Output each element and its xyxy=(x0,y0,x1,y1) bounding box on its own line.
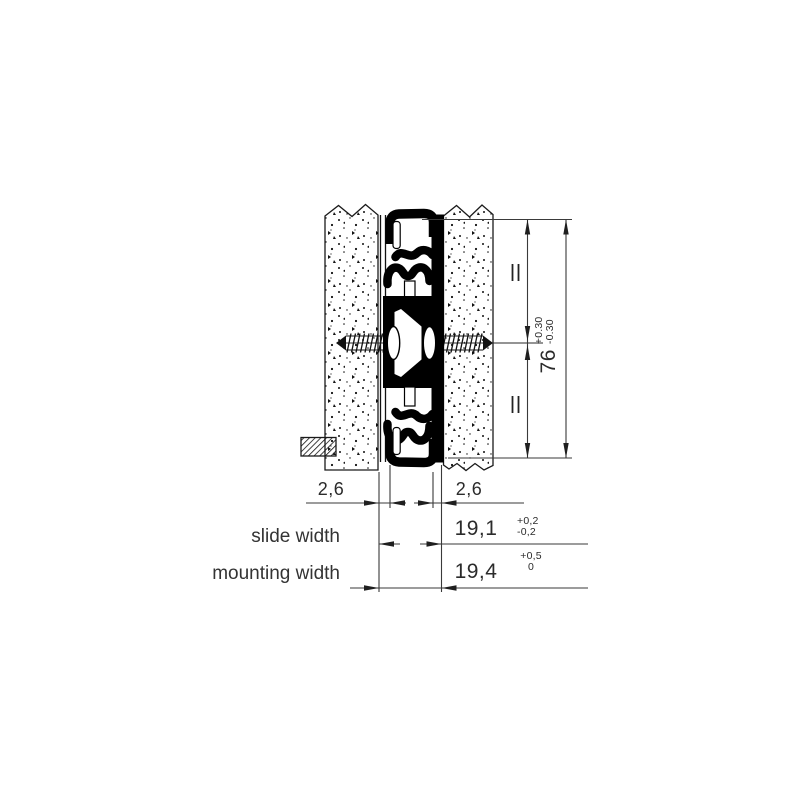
equality-mark-bottom xyxy=(513,396,519,413)
slide-profile xyxy=(381,214,445,463)
slide-top-slot xyxy=(393,222,400,249)
height-tolerance: +0.30 -0.30 xyxy=(534,317,556,345)
left-wood-panel xyxy=(325,205,378,471)
screw-head-right xyxy=(423,327,435,360)
height-tolerance-minus: -0.30 xyxy=(545,317,556,345)
drawer-slide-cross-section-drawing xyxy=(0,0,800,800)
slide-width-label: slide width xyxy=(190,526,340,548)
equality-mark-top xyxy=(513,264,519,281)
slide-bottom-ball-channel xyxy=(396,412,433,419)
technical-drawing-page: 2,6 2,6 slide width 19,1 +0,2 -0,2 mount… xyxy=(0,0,800,800)
dimension-height-value: 76 xyxy=(537,349,561,373)
wood-strip xyxy=(301,438,336,457)
dimension-clearance-left: 2,6 xyxy=(307,479,355,500)
mounting-width-label: mounting width xyxy=(183,563,340,585)
mounting-width-tolerance-minus: 0 xyxy=(517,562,545,573)
slide-lower-tab xyxy=(405,387,416,406)
dimension-clearance-right: 2,6 xyxy=(445,479,493,500)
dimension-height-group: 76 +0.30 -0.30 xyxy=(536,304,562,386)
screw-head-left xyxy=(387,327,399,360)
dimension-mounting-width-value: 19,4 xyxy=(446,560,506,584)
slide-width-tolerance: +0,2 -0,2 xyxy=(517,516,539,538)
slide-top-ball-channel xyxy=(396,250,433,257)
dimension-slide-width-value: 19,1 xyxy=(446,517,506,541)
mounting-width-tolerance: +0,5 0 xyxy=(517,551,545,573)
slide-bottom-slot xyxy=(393,428,400,455)
height-tolerance-plus: +0.30 xyxy=(534,317,545,345)
slide-width-tolerance-minus: -0,2 xyxy=(517,527,539,538)
